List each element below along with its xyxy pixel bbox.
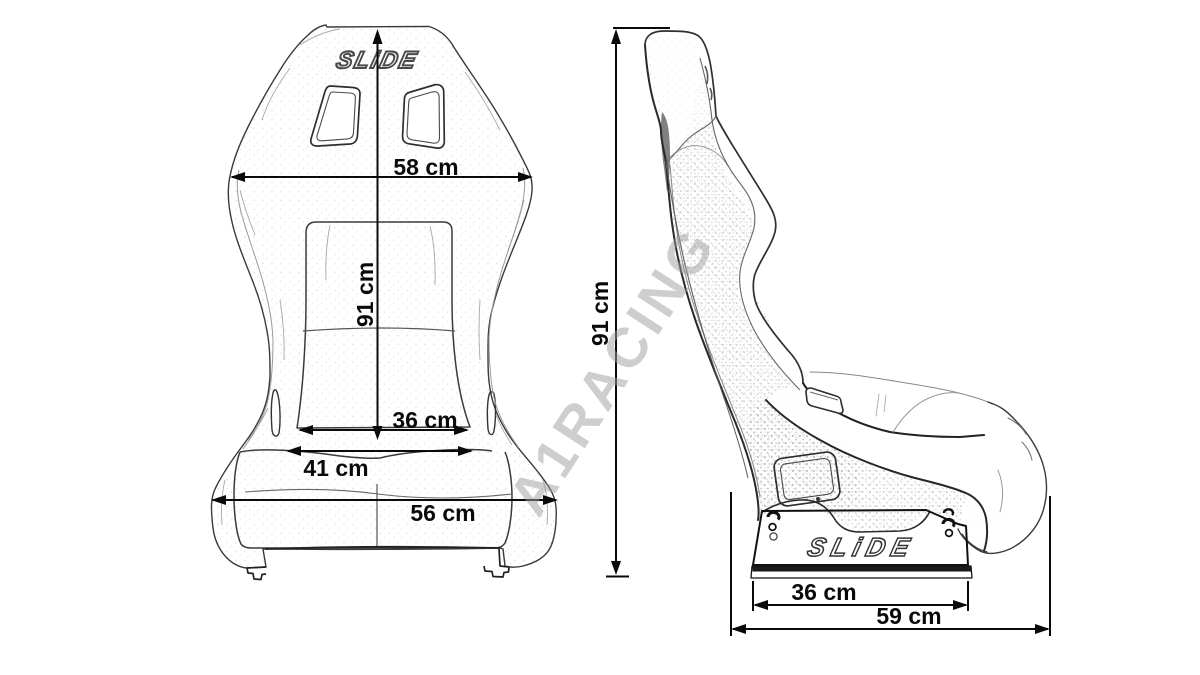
svg-text:SLiDE: SLiDE — [805, 532, 919, 562]
svg-text:59 cm: 59 cm — [876, 603, 941, 629]
svg-text:91 cm: 91 cm — [352, 262, 378, 327]
svg-text:36 cm: 36 cm — [392, 407, 457, 433]
svg-text:56 cm: 56 cm — [410, 500, 475, 526]
svg-text:58 cm: 58 cm — [393, 154, 458, 180]
svg-text:36 cm: 36 cm — [791, 579, 856, 605]
svg-text:41 cm: 41 cm — [303, 455, 368, 481]
